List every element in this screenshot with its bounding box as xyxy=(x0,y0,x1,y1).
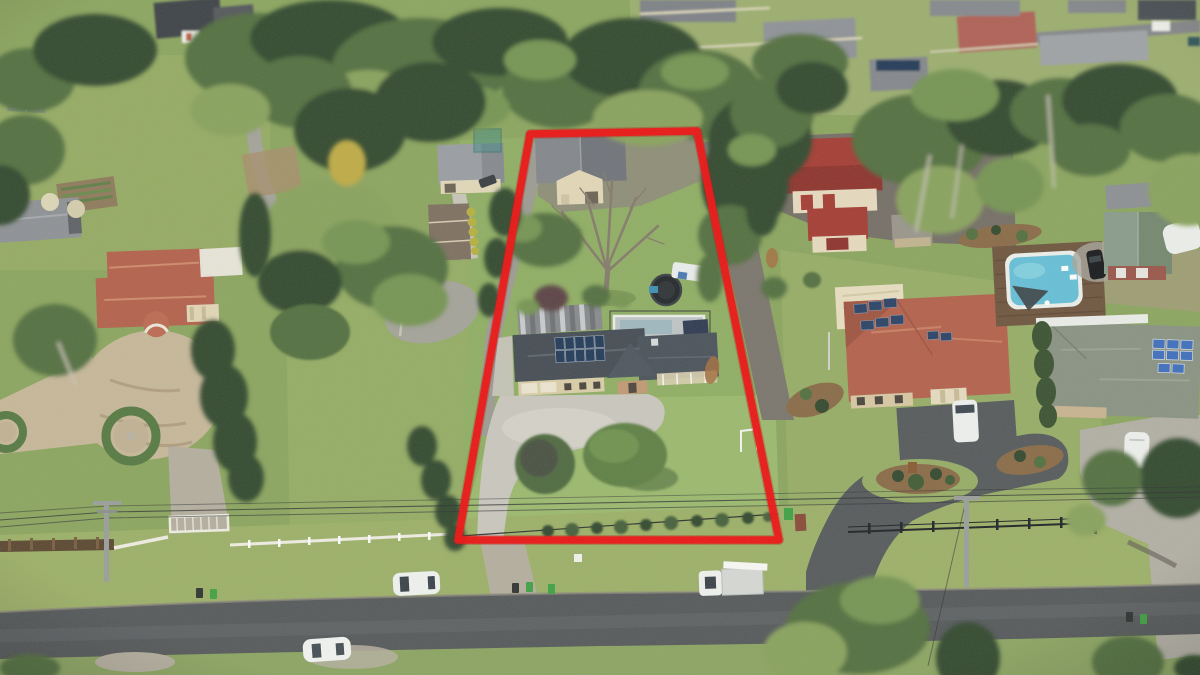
photo-grain xyxy=(0,0,1200,675)
aerial-photo xyxy=(0,0,1200,675)
aerial-photo-canvas xyxy=(0,0,1200,675)
